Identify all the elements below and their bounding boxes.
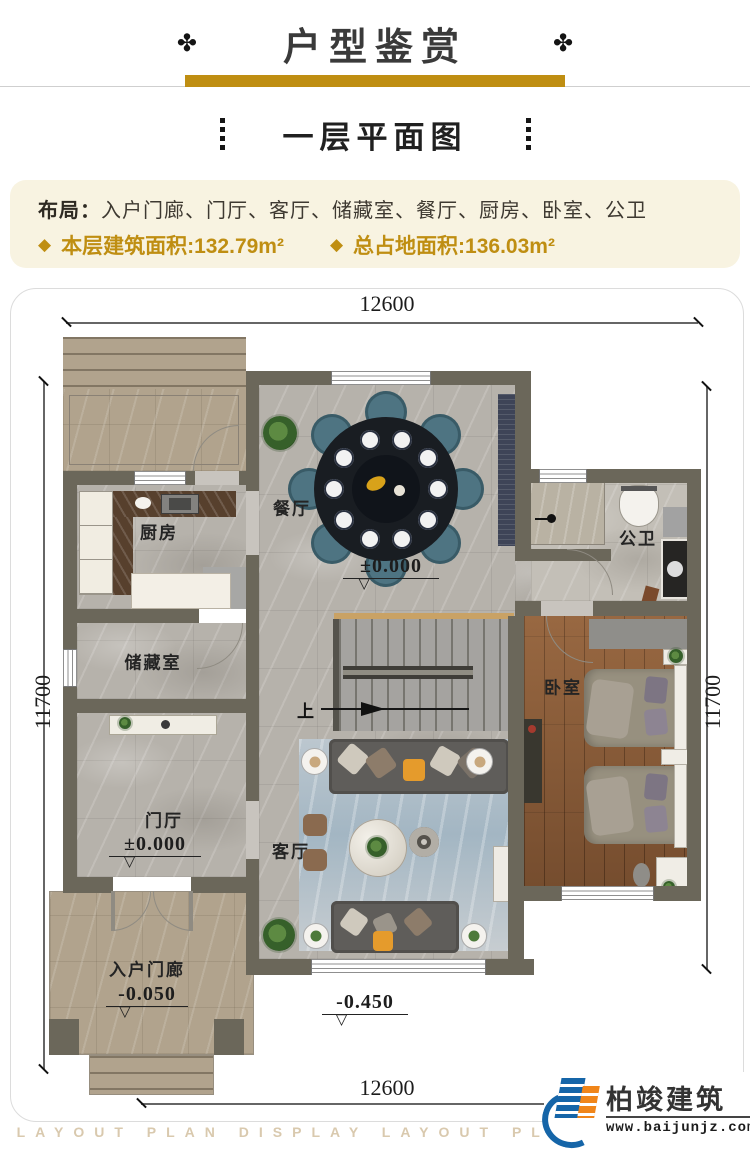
door-opening	[195, 471, 239, 485]
kitchen-appliances	[79, 491, 113, 595]
dim-left-label: 11700	[30, 657, 56, 747]
nightstand	[661, 749, 689, 765]
wall	[508, 616, 524, 975]
toilet	[619, 485, 659, 527]
wall	[246, 859, 259, 959]
porch-pillar	[49, 1019, 79, 1055]
subtitle-text: 一层平面图	[283, 112, 468, 157]
wall	[508, 886, 561, 901]
window	[331, 371, 431, 385]
bed-headboard	[674, 665, 687, 751]
room-label-bath: 公卫	[619, 525, 657, 550]
living-cabinet	[493, 846, 509, 902]
terrace-steps	[63, 337, 246, 393]
bath-sink	[667, 561, 683, 577]
shower-area	[531, 483, 605, 545]
plant	[669, 649, 683, 663]
land-area-stat: 总占地面积:136.03m²	[353, 230, 555, 260]
layout-label: 布局：	[38, 200, 101, 222]
layout-row: 布局：入户门廊、门厅、客厅、储藏室、餐厅、厨房、卧室、公卫	[38, 194, 647, 223]
dim-right-label: 11700	[700, 657, 726, 747]
dash-ornament	[220, 118, 225, 152]
porch-pillar	[214, 1019, 244, 1055]
wall	[515, 371, 531, 483]
stair-nosing	[334, 613, 514, 619]
level-marker-porch: -0.050	[106, 983, 188, 1007]
room-label-porch: 入户门廊	[109, 956, 185, 981]
level-marker-foyer: ±0.000	[109, 833, 201, 857]
room-label-living: 客厅	[272, 838, 310, 863]
door-opening	[246, 801, 259, 859]
wall	[246, 555, 259, 801]
window	[561, 886, 654, 901]
door-leaf	[111, 891, 115, 931]
ornament-icon: ✤	[553, 32, 573, 56]
page: ✤ 户型鉴赏 ✤ 一层平面图 布局：入户门廊、门厅、客厅、储藏室、餐厅、厨房、卧…	[0, 0, 750, 1154]
porch-outdoor-steps	[89, 1055, 214, 1095]
diamond-icon: ◆	[38, 235, 51, 255]
bed-pillow	[644, 708, 669, 736]
bed-pillow	[644, 676, 669, 704]
dining-centerpiece	[352, 455, 420, 523]
shower-head	[547, 514, 556, 523]
door-opening	[541, 601, 593, 616]
dash-ornament	[526, 118, 531, 152]
bed-pillow	[644, 773, 669, 801]
room-label-kitchen: 厨房	[140, 519, 178, 544]
kitchen-sink	[135, 497, 151, 509]
layout-info-box: 布局：入户门廊、门厅、客厅、储藏室、餐厅、厨房、卧室、公卫 ◆ 本层建筑面积:1…	[10, 180, 740, 268]
plant	[263, 919, 295, 951]
stair-handrail	[343, 666, 473, 679]
wall	[515, 483, 531, 549]
room-label-bedroom: 卧室	[544, 674, 582, 699]
page-header: ✤ 户型鉴赏 ✤	[0, 16, 750, 71]
area-row: ◆ 本层建筑面积:132.79m² ◆ 总占地面积:136.03m²	[38, 230, 555, 260]
room-label-foyer: 门厅	[145, 807, 183, 832]
door-opening	[246, 491, 259, 555]
room-label-dining: 餐厅	[273, 495, 311, 520]
window	[311, 959, 486, 975]
plan-subtitle: 一层平面图	[0, 112, 750, 157]
wall	[246, 384, 259, 492]
pouf	[303, 814, 327, 836]
bedroom-rug	[589, 619, 689, 649]
wall	[515, 601, 541, 616]
plant	[263, 416, 297, 450]
wall	[246, 959, 311, 975]
wall	[654, 886, 701, 901]
bed-blanket	[585, 678, 634, 739]
dining-sideboard	[498, 394, 515, 546]
bath-mirror	[663, 507, 687, 537]
ottoman	[633, 863, 650, 887]
dim-top-line	[66, 322, 698, 324]
bed-headboard	[674, 762, 687, 848]
window	[539, 469, 587, 483]
brand-name: 柏竣建筑	[606, 1078, 726, 1117]
floor-plan: 12600 12600 11700 11700	[10, 288, 744, 1122]
kitchen-island	[131, 573, 231, 609]
bed-pillow	[644, 805, 669, 833]
side-table	[466, 748, 493, 775]
dim-bottom-label: 12600	[347, 1075, 427, 1101]
wall	[63, 699, 257, 713]
header-gold-bar	[185, 75, 565, 87]
stairs-direction-line	[321, 708, 469, 710]
wall	[593, 601, 701, 616]
door-leaf	[189, 891, 193, 931]
ornament-icon: ✤	[177, 32, 197, 56]
stairs-direction-arrow-icon	[361, 702, 385, 716]
page-title: 户型鉴赏	[283, 16, 467, 71]
window	[134, 471, 186, 485]
wall	[687, 469, 701, 901]
brand-website: www.baijunjz.com	[606, 1116, 750, 1136]
window	[63, 649, 77, 687]
wall	[486, 959, 534, 975]
building-logo-icon	[544, 1076, 602, 1138]
diamond-icon: ◆	[330, 235, 343, 255]
dim-top-label: 12600	[347, 291, 427, 317]
side-table	[301, 748, 328, 775]
floor-area-stat: 本层建筑面积:132.79m²	[61, 230, 284, 260]
bed-blanket	[585, 775, 634, 836]
coffee-table-small	[409, 827, 439, 857]
side-table	[461, 923, 487, 949]
room-label-storage: 储藏室	[125, 649, 182, 674]
brand-logo: 柏竣建筑 www.baijunjz.com	[544, 1072, 746, 1148]
stairs-up-label: 上	[297, 697, 314, 722]
layout-rooms: 入户门廊、门厅、客厅、储藏室、餐厅、厨房、卧室、公卫	[101, 200, 647, 222]
wall	[63, 609, 199, 623]
side-table	[303, 923, 329, 949]
level-marker-dining: ±0.000	[343, 555, 439, 579]
table-plant	[367, 837, 387, 857]
wall	[63, 877, 113, 893]
level-marker-outdoor: -0.450	[322, 991, 408, 1015]
